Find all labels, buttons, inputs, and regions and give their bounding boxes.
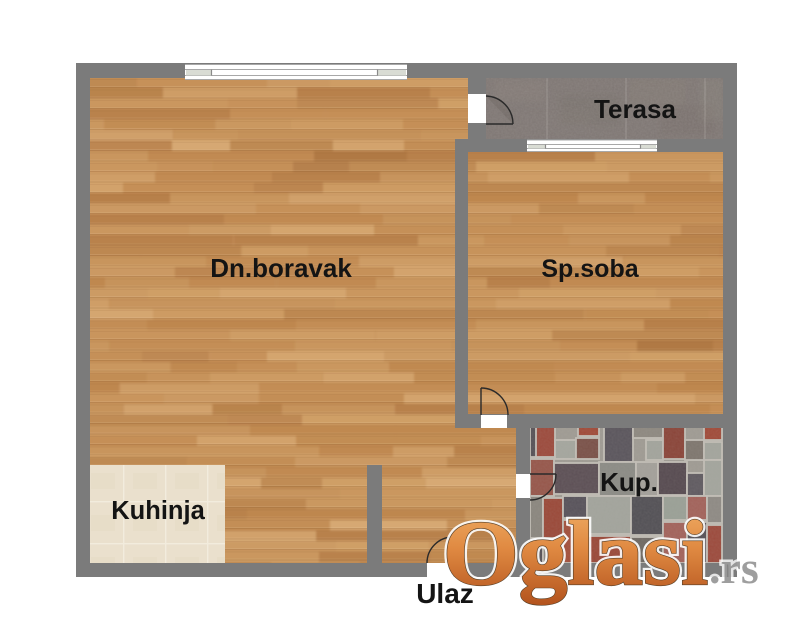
svg-text:Kuhinja: Kuhinja — [111, 497, 205, 525]
svg-text:Terasa: Terasa — [594, 94, 676, 124]
svg-text:.rs: .rs — [709, 542, 759, 593]
svg-text:Oglasi: Oglasi — [443, 502, 708, 604]
svg-text:Sp.soba: Sp.soba — [541, 255, 639, 283]
svg-text:Kup.: Kup. — [600, 467, 658, 497]
svg-text:Dn.boravak: Dn.boravak — [210, 253, 352, 283]
